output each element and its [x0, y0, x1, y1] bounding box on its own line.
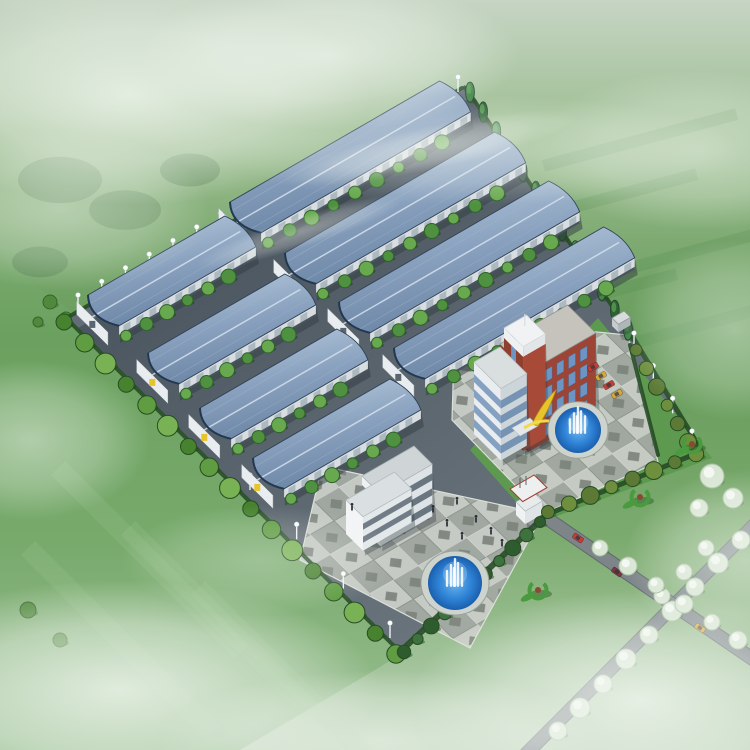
courtyard-tree	[413, 310, 428, 325]
courtyard-tree	[318, 288, 329, 299]
topiary-center	[535, 587, 541, 593]
courtyard-tree	[448, 213, 459, 224]
pedestrian-head	[446, 519, 449, 522]
boundary-tree	[505, 540, 521, 556]
courtyard-tree	[325, 468, 340, 483]
pedestrian-head	[475, 515, 478, 518]
boundary-tree	[605, 481, 618, 494]
boundary-tree	[670, 416, 684, 430]
boundary-tree	[412, 634, 423, 645]
pedestrian-head	[461, 532, 464, 535]
courtyard-tree	[502, 262, 513, 273]
courtyard-tree	[437, 300, 448, 311]
pedestrian-head	[432, 505, 435, 508]
topiary-center	[637, 494, 643, 500]
courtyard-tree	[294, 408, 305, 419]
field-tree	[43, 295, 57, 309]
gable-door	[149, 379, 155, 386]
boundary-tree	[344, 602, 365, 623]
boundary-tree	[76, 334, 94, 352]
street-light-lamp	[388, 621, 393, 626]
boundary-tree	[200, 458, 218, 476]
courtyard-tree	[447, 370, 460, 383]
courtyard-tree	[281, 327, 296, 342]
boundary-tree	[220, 478, 241, 499]
courtyard-tree	[202, 282, 215, 295]
courtyard-tree	[383, 251, 394, 262]
boundary-tree	[542, 506, 555, 519]
courtyard-tree	[367, 445, 380, 458]
mist-cloud	[120, 505, 400, 615]
aerial-rendering-canvas	[0, 0, 750, 750]
courtyard-tree	[182, 295, 193, 306]
boundary-tree	[367, 625, 383, 641]
boundary-tree	[561, 496, 576, 511]
courtyard-tree	[305, 480, 318, 493]
courtyard-tree	[220, 363, 235, 378]
courtyard-tree	[347, 458, 358, 469]
courtyard-tree	[286, 493, 297, 504]
courtyard-tree	[272, 418, 287, 433]
boundary-tree	[423, 618, 439, 634]
boundary-tree	[397, 645, 410, 658]
street-light-lamp	[690, 429, 695, 434]
courtyard-tree	[252, 430, 265, 443]
poplar-highlight	[611, 302, 616, 312]
courtyard-tree	[181, 388, 192, 399]
pedestrian-head	[501, 539, 504, 542]
courtyard-tree	[424, 224, 439, 239]
pedestrian-head	[456, 497, 459, 500]
boundary-tree	[645, 462, 663, 480]
gable-door	[395, 374, 401, 381]
courtyard-tree	[458, 286, 471, 299]
courtyard-tree	[314, 395, 327, 408]
boundary-tree	[494, 556, 505, 567]
courtyard-tree	[578, 294, 591, 307]
boundary-tree	[625, 471, 640, 486]
boundary-tree	[56, 314, 72, 330]
boundary-tree	[181, 439, 197, 455]
gable-door	[201, 434, 207, 441]
courtyard-tree	[338, 275, 351, 288]
gable-door	[89, 321, 95, 328]
courtyard-tree	[160, 305, 175, 320]
courtyard-tree	[200, 375, 213, 388]
boundary-tree	[668, 456, 681, 469]
courtyard-tree	[599, 281, 614, 296]
courtyard-tree	[359, 261, 374, 276]
courtyard-tree	[221, 269, 236, 284]
courtyard-tree	[404, 237, 417, 250]
courtyard-tree	[242, 353, 253, 364]
pedestrian-head	[351, 503, 354, 506]
courtyard-tree	[140, 317, 153, 330]
courtyard-tree	[333, 382, 348, 397]
courtyard-tree	[386, 432, 401, 447]
courtyard-tree	[544, 235, 559, 250]
topiary-center	[689, 441, 695, 447]
boundary-tree	[535, 517, 546, 528]
street-light-lamp	[76, 293, 81, 298]
pedestrian-head	[490, 527, 493, 530]
courtyard-tree	[262, 340, 275, 353]
field-tree	[33, 317, 43, 327]
courtyard-tree	[121, 330, 132, 341]
boundary-tree	[157, 415, 178, 436]
industrial-park-rendering	[0, 0, 750, 750]
fountain-spray-glow	[568, 412, 589, 433]
courtyard-tree	[233, 443, 244, 454]
courtyard-tree	[523, 248, 536, 261]
fountain	[421, 551, 489, 615]
courtyard-tree	[372, 337, 383, 348]
blossom-highlight	[594, 542, 601, 549]
gable-door	[254, 484, 260, 491]
fountain-spray-glow	[443, 561, 467, 585]
courtyard-tree	[392, 324, 405, 337]
courtyard-tree	[427, 383, 438, 394]
boundary-tree	[581, 487, 599, 505]
courtyard-tree	[478, 273, 493, 288]
boundary-tree	[95, 353, 116, 374]
boundary-tree	[520, 528, 533, 541]
fountain	[548, 402, 608, 458]
